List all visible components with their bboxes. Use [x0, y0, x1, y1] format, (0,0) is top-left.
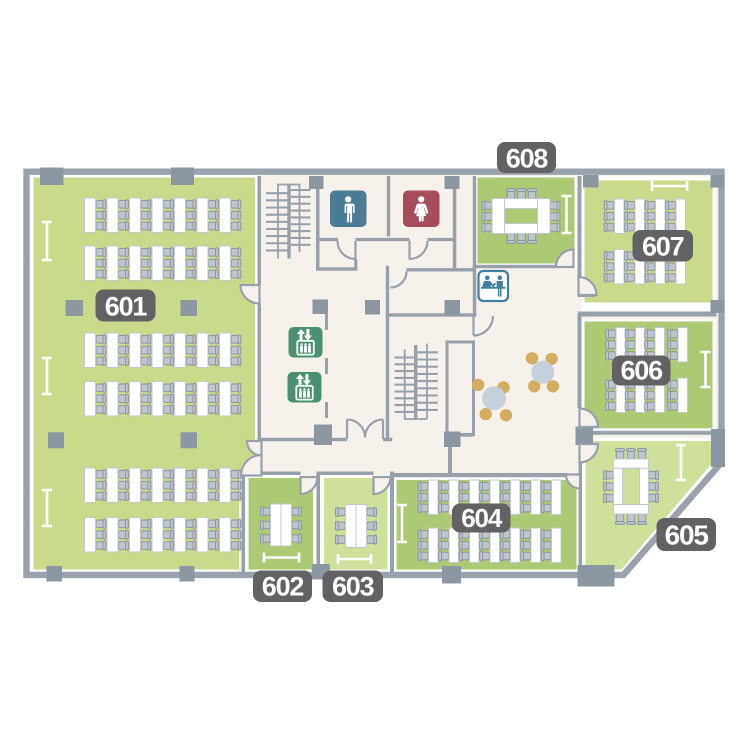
svg-text:601: 601 — [105, 292, 148, 322]
svg-text:604: 604 — [461, 503, 503, 533]
svg-text:603: 603 — [332, 572, 375, 602]
svg-text:602: 602 — [262, 572, 304, 602]
svg-text:606: 606 — [620, 356, 663, 386]
svg-text:605: 605 — [665, 520, 709, 551]
svg-text:608: 608 — [506, 144, 549, 174]
svg-text:607: 607 — [642, 232, 684, 262]
